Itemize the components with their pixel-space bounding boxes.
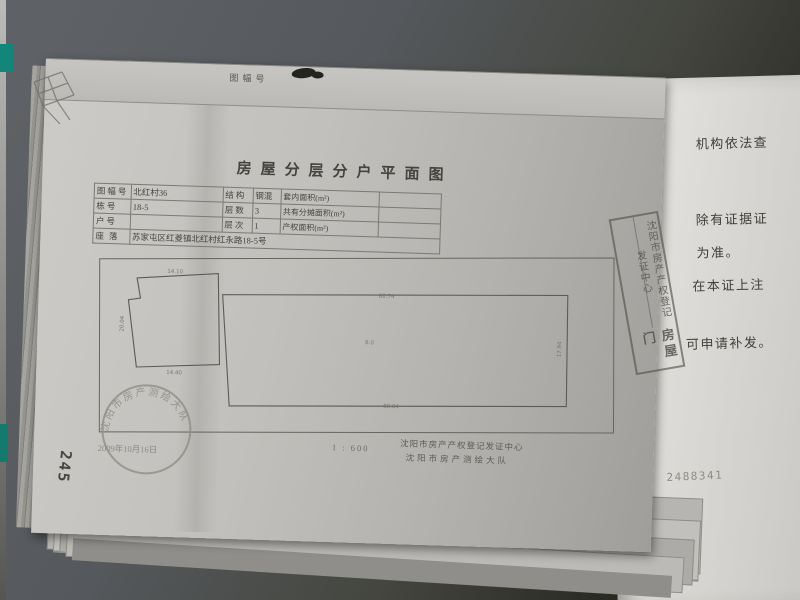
right-unit-outline [219, 285, 570, 417]
ink-blot [311, 71, 323, 78]
page-fold-strip: 图幅号 [45, 59, 666, 119]
handwritten-page-number: 245 [54, 450, 75, 485]
dimension-label: 17.94 [557, 341, 564, 357]
dimension-label: 20.04 [119, 315, 126, 331]
diagonal-stamp-text: 房屋门 [654, 323, 683, 368]
next-page-text-line: 在本证上注 [692, 274, 765, 295]
cell-label: 层数 [222, 202, 252, 218]
dimension-label: 6.0 [365, 340, 374, 346]
teal-object-top [0, 44, 13, 72]
serial-number: 2488341 [666, 469, 723, 484]
cell-label: 结构 [223, 187, 253, 203]
cell-label: 层次 [222, 217, 252, 233]
cell-value: 1 [252, 218, 280, 234]
teal-object-bottom [0, 424, 8, 462]
next-page-text-line: 机构依法查 [695, 132, 768, 153]
dimension-label: 80.74 [379, 294, 395, 301]
round-stamp: 沈阳市房产测绘大队 [97, 380, 196, 479]
cell-label: 栋号 [94, 198, 131, 214]
map-scale: 1 : 600 [332, 442, 370, 453]
org-line-2: 沈阳市房产测绘大队 [405, 451, 509, 466]
floor-plan-page: 图幅号 房屋分层分户平面图 图幅号 北红村36 结构 钢混 套内面积(m²) 栋… [31, 58, 666, 552]
dimension-label: 14.40 [166, 370, 182, 377]
fold-edge-label: 图幅号 [229, 71, 268, 85]
cell-value: 3 [252, 203, 280, 219]
pencil-scribble [26, 68, 86, 128]
dimension-label: 80.04 [383, 404, 399, 411]
cell-value: 钢混 [253, 188, 281, 204]
cell-label: 户号 [93, 213, 130, 229]
survey-date: 2009年10月16日 [98, 442, 158, 456]
next-page-text-line: 为准。 [696, 242, 740, 262]
next-page-text-line: 可申请补发。 [686, 332, 773, 353]
photo-edge-strip [0, 0, 6, 600]
left-unit-outline [126, 271, 222, 370]
cell-label: 图幅号 [94, 183, 131, 199]
org-line-1: 沈阳市房产产权登记发证中心 [400, 437, 524, 453]
photo-of-document: 机构依法查 除有证据证 为准。 在本证上注 可申请补发。 2488341 图幅号… [0, 0, 800, 600]
dimension-label: 14.10 [167, 269, 183, 276]
next-page-text-line: 除有证据证 [695, 208, 768, 229]
round-stamp-text: 沈阳市房产测绘大队 [98, 383, 194, 435]
